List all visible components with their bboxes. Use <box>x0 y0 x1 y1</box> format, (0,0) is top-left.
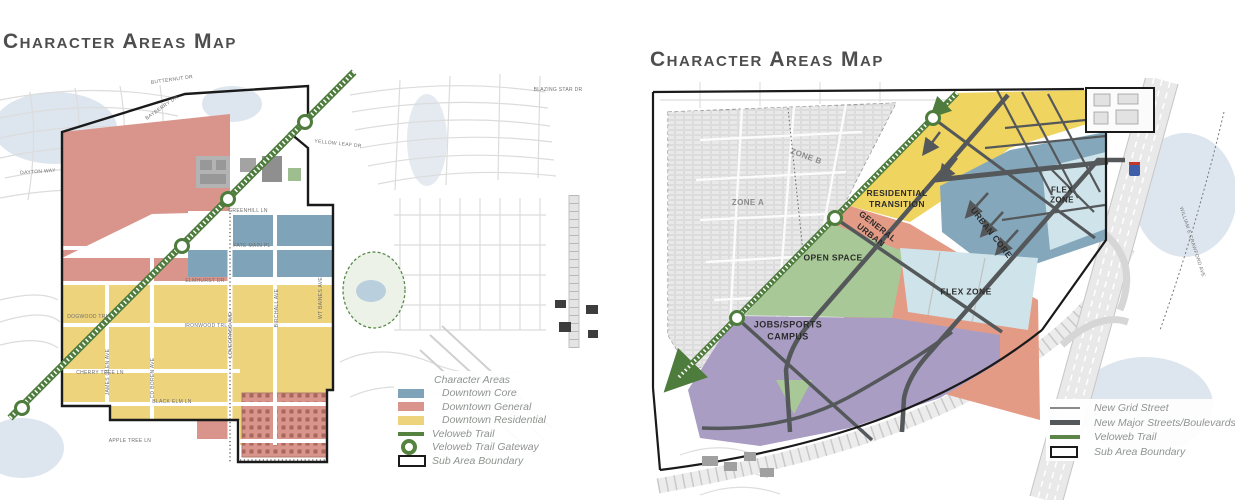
downtown-general-swatch <box>398 402 424 411</box>
legend-item-downtown-residential: Downtown Residential <box>398 414 588 428</box>
legend-item-new-major-streets: New Major Streets/Boulevards <box>1050 416 1235 431</box>
legend-header-row: Character Areas <box>398 373 588 387</box>
new-grid-street-swatch <box>1050 407 1080 409</box>
downtown-core-swatch <box>398 389 424 398</box>
legend-header: Character Areas <box>434 374 510 386</box>
left-map-title: Character Areas Map <box>3 30 237 54</box>
legend-item-sub-area-boundary: Sub Area Boundary <box>398 454 588 468</box>
sub-area-boundary-swatch <box>398 455 426 467</box>
park-area <box>343 252 405 328</box>
legend-item-downtown-general: Downtown General <box>398 400 588 414</box>
outparcel-block <box>1086 88 1154 132</box>
legend-item-veloweb-trail: Veloweb Trail <box>1050 430 1235 445</box>
legend-item-sub-area-boundary: Sub Area Boundary <box>1050 445 1235 460</box>
right-map-title: Character Areas Map <box>650 48 884 72</box>
civic-buildings <box>196 156 301 188</box>
interstate-shield-icon <box>1129 162 1140 176</box>
character-areas-maps-page: Character Areas Map <box>0 0 1235 500</box>
legend-item-downtown-core: Downtown Core <box>398 387 588 401</box>
legend-item-new-grid-street: New Grid Street <box>1050 401 1235 416</box>
downtown-residential-swatch <box>398 416 424 425</box>
sub-area-boundary-swatch <box>1050 446 1078 458</box>
gap-road <box>555 195 598 348</box>
right-map-legend: New Grid Street New Major Streets/Boulev… <box>1046 399 1235 461</box>
legend-item-veloweb-gateway: Veloweb Trail Gateway <box>398 441 588 455</box>
veloweb-gateway-icon <box>401 439 417 455</box>
veloweb-trail-swatch <box>398 432 424 436</box>
left-map-legend: Character Areas Downtown Core Downtown G… <box>394 371 592 470</box>
new-major-streets-swatch <box>1050 420 1080 425</box>
veloweb-trail-swatch <box>1050 435 1080 439</box>
